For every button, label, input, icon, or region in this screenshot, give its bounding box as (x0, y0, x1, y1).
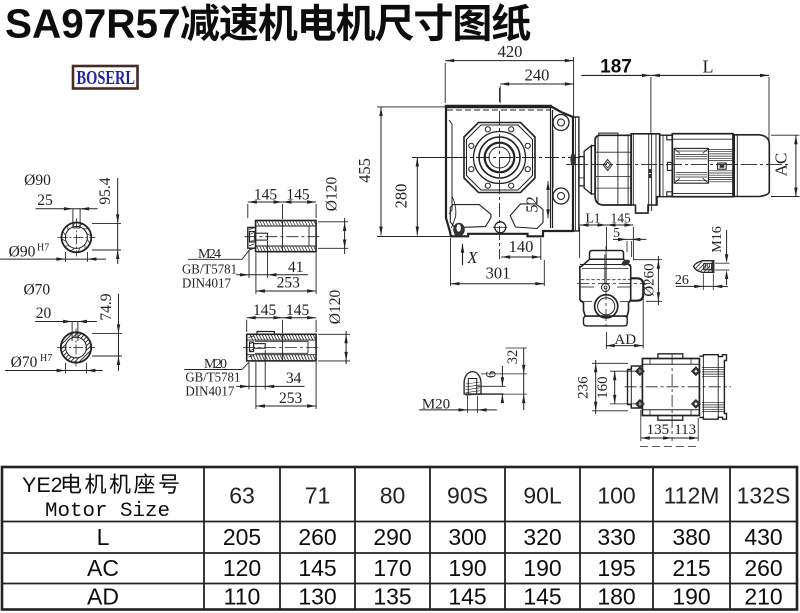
svg-text:145: 145 (448, 584, 486, 610)
svg-text:290: 290 (373, 524, 411, 550)
svg-text:Ø120: Ø120 (327, 290, 344, 325)
svg-text:160: 160 (595, 376, 611, 399)
svg-text:Ø120: Ø120 (323, 177, 340, 212)
svg-text:H7: H7 (37, 243, 49, 254)
svg-text:20: 20 (36, 305, 52, 322)
svg-text:AC: AC (772, 153, 791, 177)
svg-text:190: 190 (672, 584, 710, 610)
svg-text:90S: 90S (447, 483, 488, 509)
svg-text:71: 71 (305, 483, 331, 509)
svg-text:260: 260 (744, 555, 782, 581)
svg-text:95.4: 95.4 (97, 177, 114, 204)
svg-text:Motor Size: Motor Size (45, 500, 170, 523)
svg-text:41: 41 (288, 259, 304, 276)
svg-text:H7: H7 (40, 353, 52, 364)
svg-text:187: 187 (600, 57, 632, 78)
svg-text:AC: AC (87, 555, 119, 581)
svg-text:455: 455 (355, 158, 374, 183)
svg-text:195: 195 (597, 555, 635, 581)
svg-text:BOSERL: BOSERL (77, 68, 136, 89)
svg-text:34: 34 (286, 370, 302, 387)
svg-text:190: 190 (448, 555, 486, 581)
svg-text:Ø70: Ø70 (23, 282, 50, 299)
svg-text:DIN4017: DIN4017 (182, 276, 231, 291)
svg-text:90L: 90L (523, 483, 562, 509)
svg-text:190: 190 (523, 555, 561, 581)
svg-text:301: 301 (486, 264, 511, 283)
svg-text:L: L (703, 57, 714, 77)
svg-text:145: 145 (286, 302, 310, 319)
svg-text:330: 330 (597, 524, 635, 550)
svg-text:260: 260 (298, 524, 336, 550)
svg-text:140: 140 (509, 237, 534, 256)
svg-text:253: 253 (277, 275, 301, 292)
svg-text:26: 26 (675, 273, 689, 288)
svg-text:215: 215 (672, 555, 710, 581)
svg-text:Ø90: Ø90 (9, 244, 36, 261)
svg-text:100: 100 (597, 483, 635, 509)
svg-text:Ø70: Ø70 (11, 354, 38, 371)
svg-text:L: L (97, 524, 110, 550)
svg-text:63: 63 (229, 483, 255, 509)
svg-text:GB/T5781: GB/T5781 (182, 263, 237, 278)
svg-text:110: 110 (224, 584, 261, 610)
svg-text:132S: 132S (737, 483, 791, 509)
svg-text:113: 113 (674, 422, 696, 438)
svg-text:74.9: 74.9 (98, 293, 115, 320)
svg-text:SA97R57: SA97R57 (5, 1, 181, 47)
svg-text:52: 52 (523, 196, 542, 213)
svg-text:145: 145 (610, 211, 631, 226)
svg-text:236: 236 (576, 376, 592, 399)
svg-text:Ø90: Ø90 (24, 172, 51, 189)
svg-text:420: 420 (498, 42, 523, 61)
svg-text:280: 280 (392, 184, 411, 209)
svg-text:240: 240 (525, 66, 550, 85)
svg-text:112M: 112M (664, 483, 720, 509)
svg-text:145: 145 (298, 555, 336, 581)
svg-text:320: 320 (523, 524, 561, 550)
svg-text:GB/T5781: GB/T5781 (185, 371, 240, 386)
svg-text:210: 210 (744, 584, 782, 610)
svg-text:M16: M16 (710, 226, 725, 252)
svg-text:25: 25 (37, 192, 53, 209)
svg-text:5: 5 (613, 225, 620, 240)
svg-text:X: X (466, 248, 478, 267)
svg-text:80: 80 (380, 483, 406, 509)
svg-text:DIN4017: DIN4017 (185, 384, 234, 399)
svg-text:YE2: YE2 (22, 473, 63, 497)
svg-text:145: 145 (523, 584, 561, 610)
svg-text:180: 180 (597, 584, 635, 610)
svg-text:300: 300 (448, 524, 486, 550)
svg-text:Ø260: Ø260 (641, 263, 657, 296)
svg-text:130: 130 (298, 584, 336, 610)
svg-text:135: 135 (647, 422, 670, 438)
svg-text:430: 430 (744, 524, 782, 550)
svg-text:L1: L1 (586, 211, 601, 226)
svg-text:AD: AD (87, 584, 119, 610)
svg-text:170: 170 (373, 555, 411, 581)
svg-text:32: 32 (505, 350, 521, 365)
svg-text:253: 253 (279, 390, 303, 407)
svg-text:120: 120 (223, 555, 261, 581)
svg-text:6: 6 (484, 371, 500, 378)
svg-text:380: 380 (672, 524, 710, 550)
svg-text:205: 205 (223, 524, 261, 550)
svg-text:135: 135 (373, 584, 411, 610)
svg-text:145: 145 (253, 302, 277, 319)
